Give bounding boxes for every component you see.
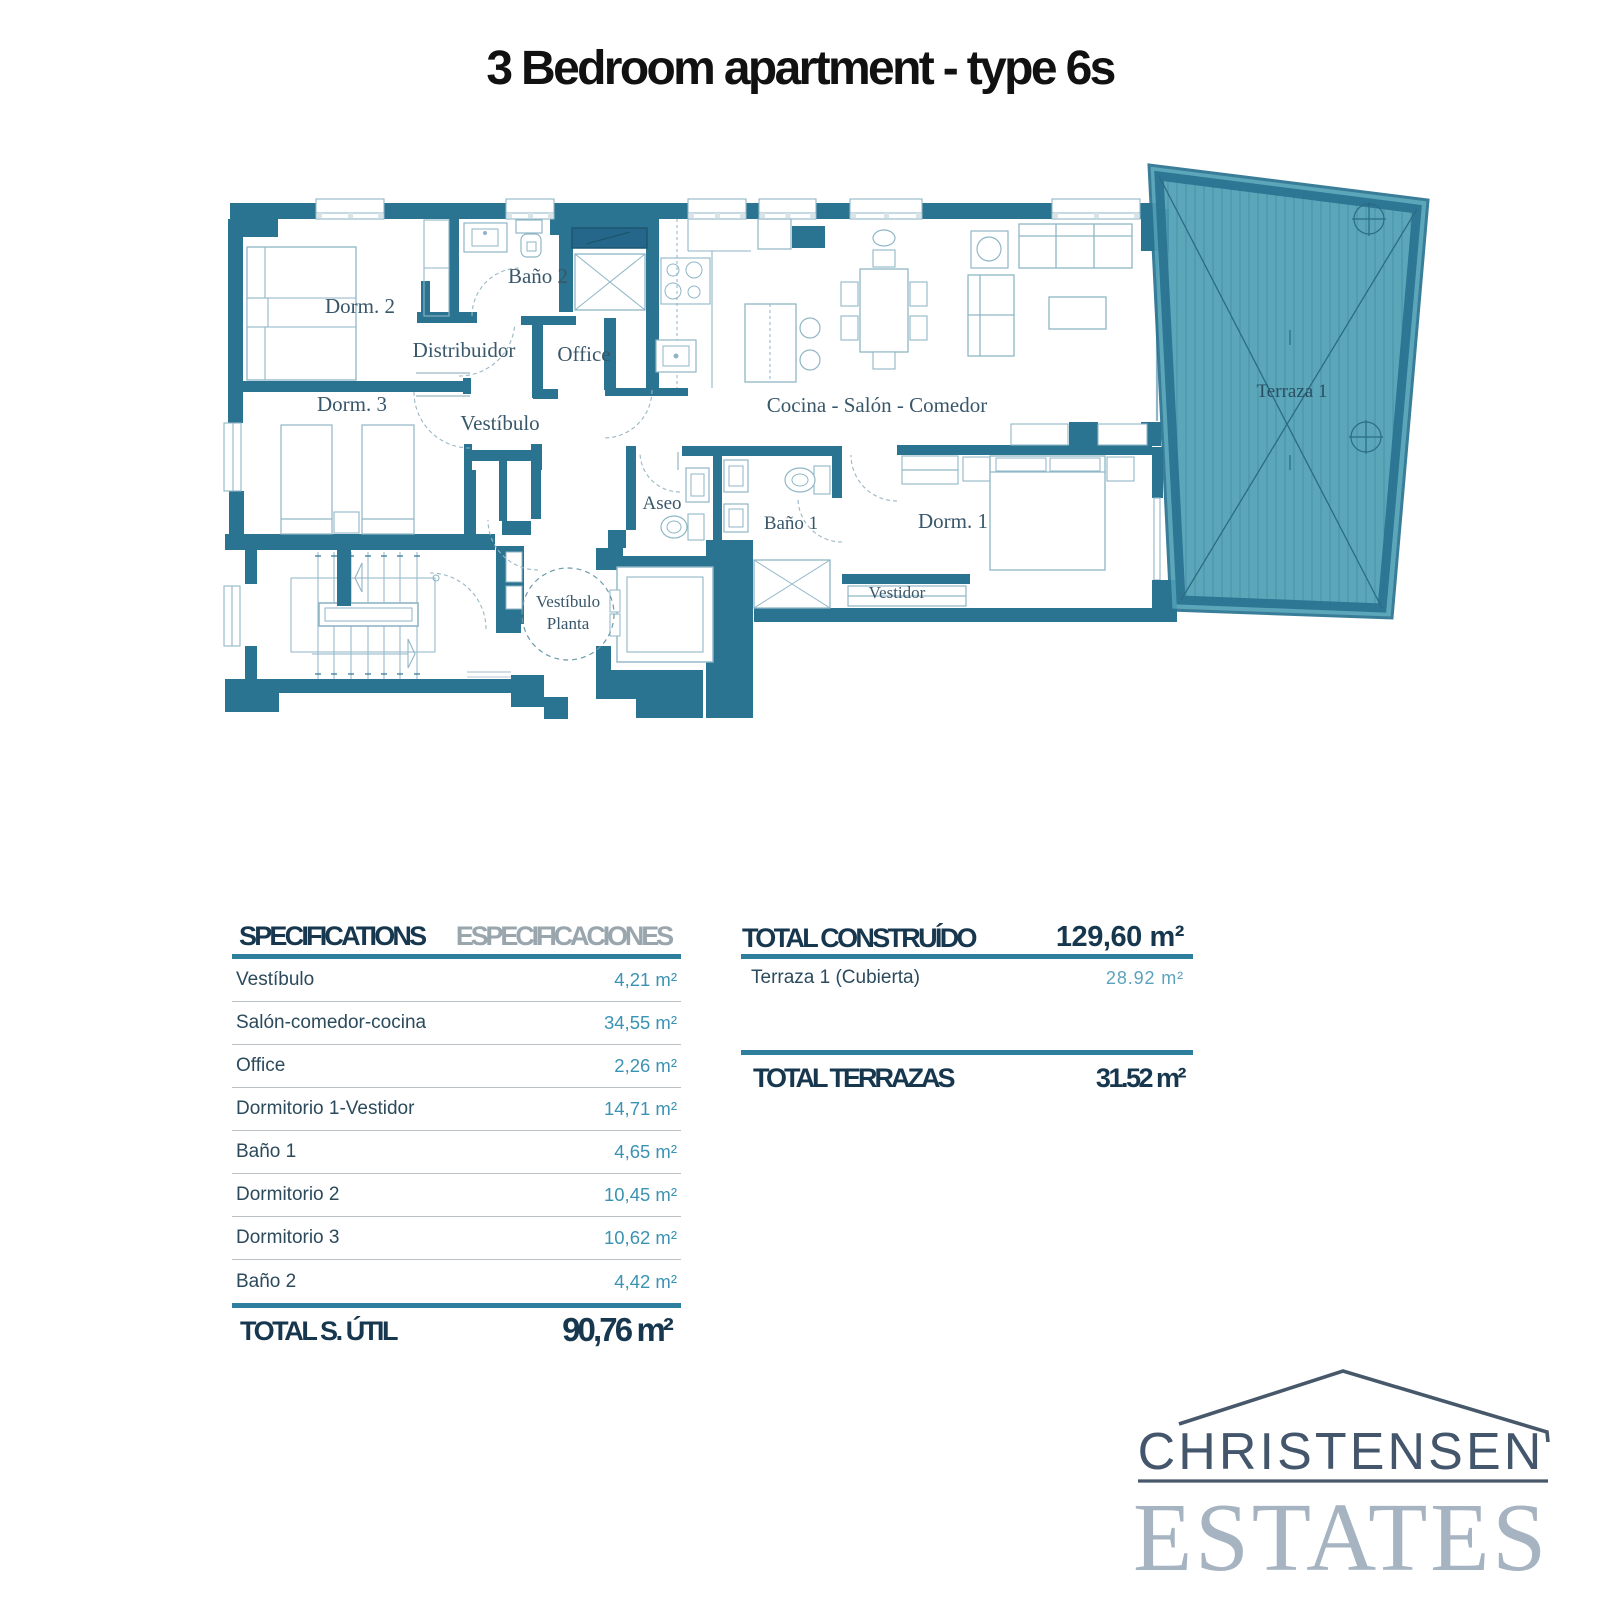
svg-text:Terraza 1: Terraza 1 [1257,381,1328,402]
svg-text:Cocina - Salón - Comedor: Cocina - Salón - Comedor [767,393,987,417]
svg-text:CHRISTENSEN: CHRISTENSEN [1138,1423,1545,1481]
svg-text:Office: Office [557,342,610,366]
svg-text:Dorm. 1: Dorm. 1 [918,509,988,533]
svg-text:Vestidor: Vestidor [869,583,926,602]
svg-text:Vestíbulo: Vestíbulo [460,411,539,435]
svg-text:Dorm. 2: Dorm. 2 [325,294,395,318]
svg-text:Aseo: Aseo [642,493,681,514]
svg-text:Dorm. 3: Dorm. 3 [317,392,387,416]
svg-text:Planta: Planta [547,614,590,633]
svg-text:ESTATES: ESTATES [1133,1484,1549,1590]
svg-text:Vestíbulo: Vestíbulo [536,592,600,611]
svg-text:Baño 1: Baño 1 [764,513,818,534]
